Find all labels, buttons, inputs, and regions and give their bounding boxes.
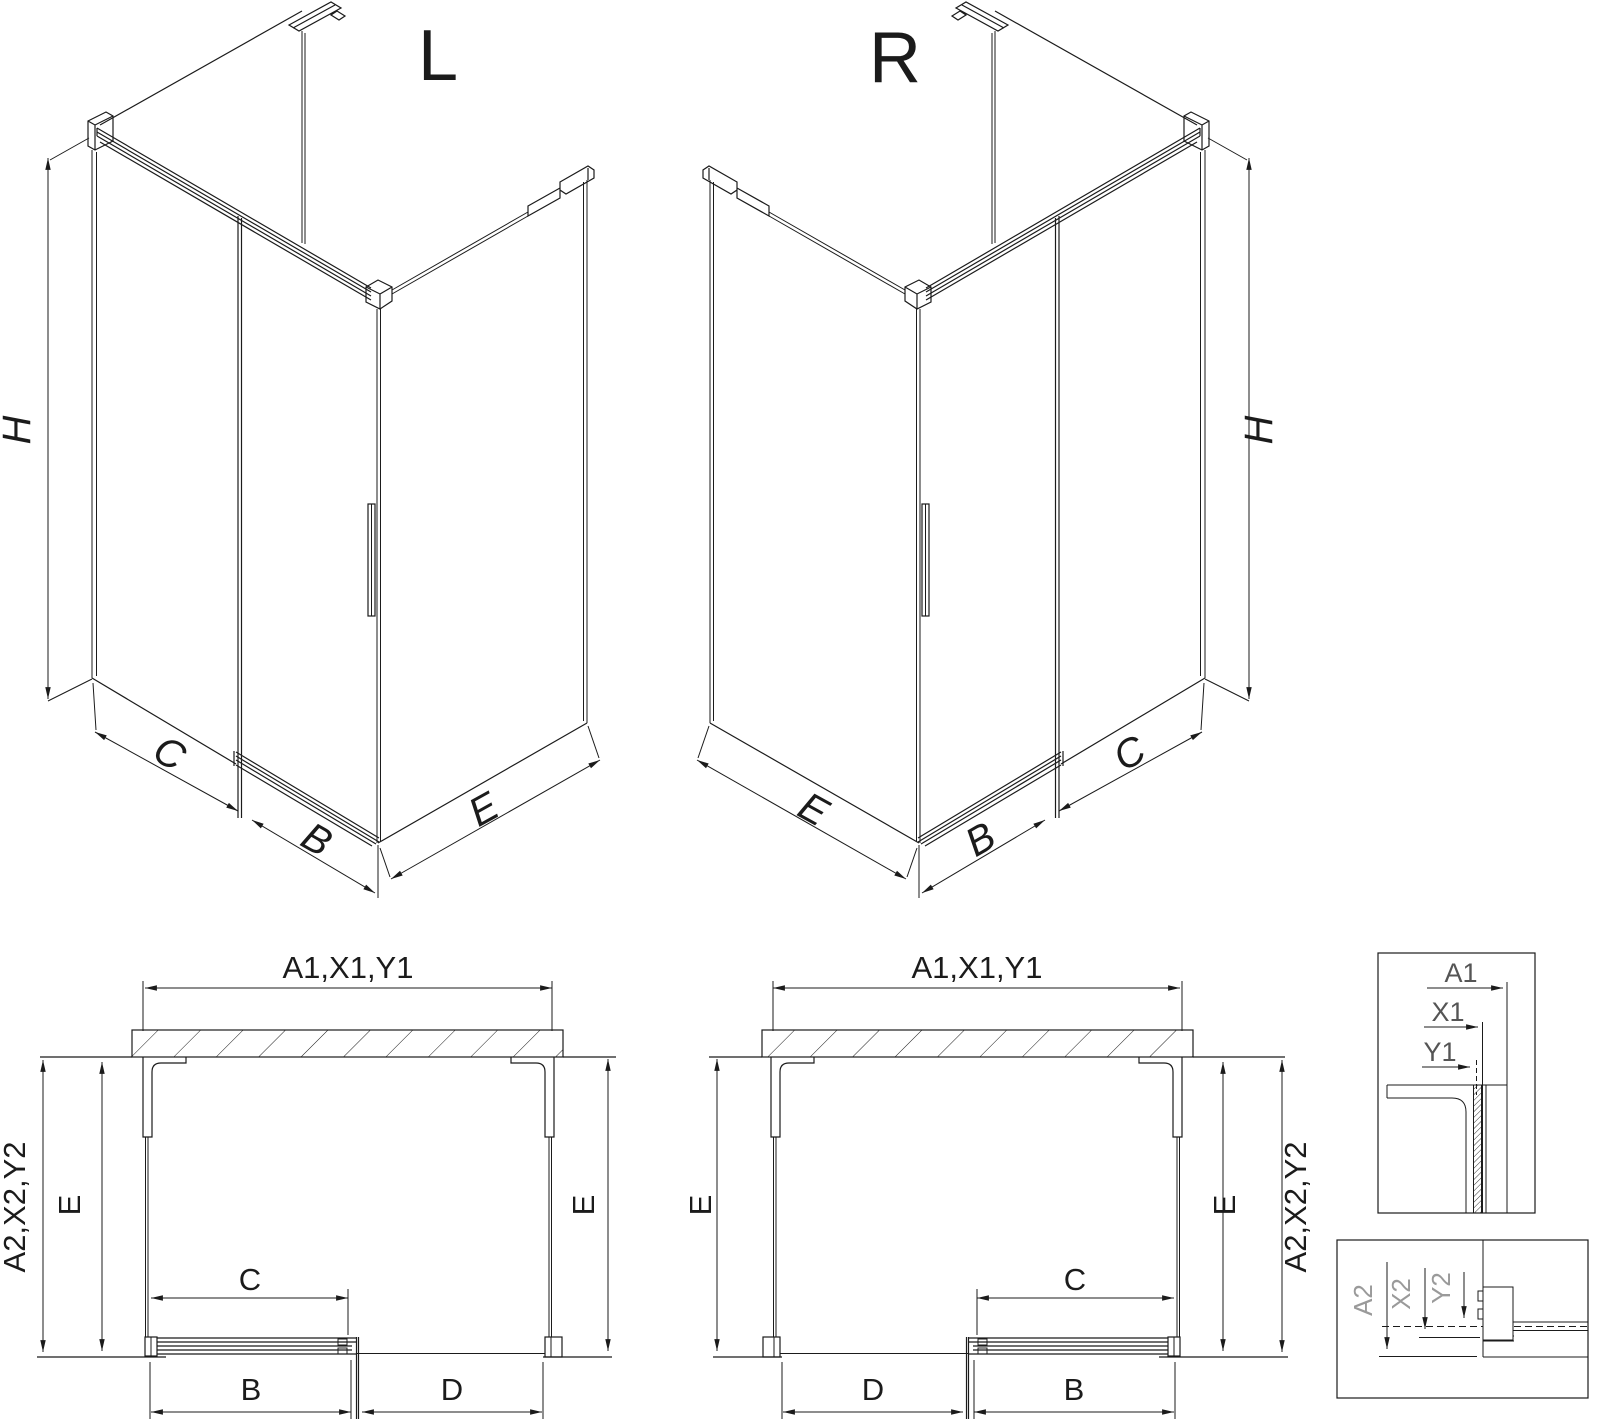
label-e-plan-left-1: E [52,1195,87,1216]
label-b-plan-right: B [1064,1372,1085,1407]
glass-hatch-top-detail [1474,1085,1482,1213]
plan-right-linework [709,1030,1288,1419]
view-label-R: R [869,18,921,98]
label-h-right: H [1237,415,1281,444]
label-c-left: C [146,727,194,780]
label-d-plan-left: D [441,1372,463,1407]
iso-view-left: L H C B E [0,2,600,898]
drawing-canvas: L H C B E [0,0,1600,1423]
plan-left-linework [37,1030,616,1419]
label-d-plan-right: D [862,1372,884,1407]
plan-view-right: A1,X1,Y1 A2,X2,Y2 E E C B D [683,950,1313,1419]
iso-view-right: R H C B E [697,2,1281,898]
label-c-right: C [1106,727,1154,780]
label-c-plan-right: C [1064,1262,1086,1297]
label-e-plan-right-2: E [1207,1195,1242,1216]
label-b-plan-left: B [241,1372,262,1407]
technical-drawing: L H C B E [0,0,1600,1423]
label-e-plan-right-1: E [683,1195,718,1216]
plan-view-left: A1,X1,Y1 A2,X2,Y2 E E C B D [0,950,616,1419]
label-x1-detail: X1 [1431,997,1464,1027]
wall-hatch-left [132,1030,563,1057]
detail-box-top: A1 X1 Y1 [1378,953,1535,1213]
iso-right-dimensions [697,138,1249,893]
label-h-left: H [0,415,39,444]
label-x2-detail: X2 [1386,1278,1416,1310]
label-a2-detail: A2 [1348,1284,1378,1316]
label-a1x1y1-right: A1,X1,Y1 [912,950,1043,985]
label-a2x2y2-right: A2,X2,Y2 [1278,1142,1313,1273]
wall-hatch-right [762,1030,1193,1057]
label-a2x2y2-left: A2,X2,Y2 [0,1142,32,1273]
label-a1-detail: A1 [1444,958,1477,988]
view-label-L: L [418,16,458,96]
label-y1-detail: Y1 [1423,1037,1456,1067]
iso-left-dimensions [48,138,600,893]
label-a1x1y1-left: A1,X1,Y1 [283,950,414,985]
detail-bottom-border [1337,1240,1588,1398]
detail-top-border [1378,953,1535,1213]
detail-box-bottom: A2 X2 Y2 [1337,1240,1588,1398]
label-c-plan-left: C [239,1262,261,1297]
label-y2-detail: Y2 [1426,1272,1456,1304]
label-e-plan-left-2: E [566,1195,601,1216]
